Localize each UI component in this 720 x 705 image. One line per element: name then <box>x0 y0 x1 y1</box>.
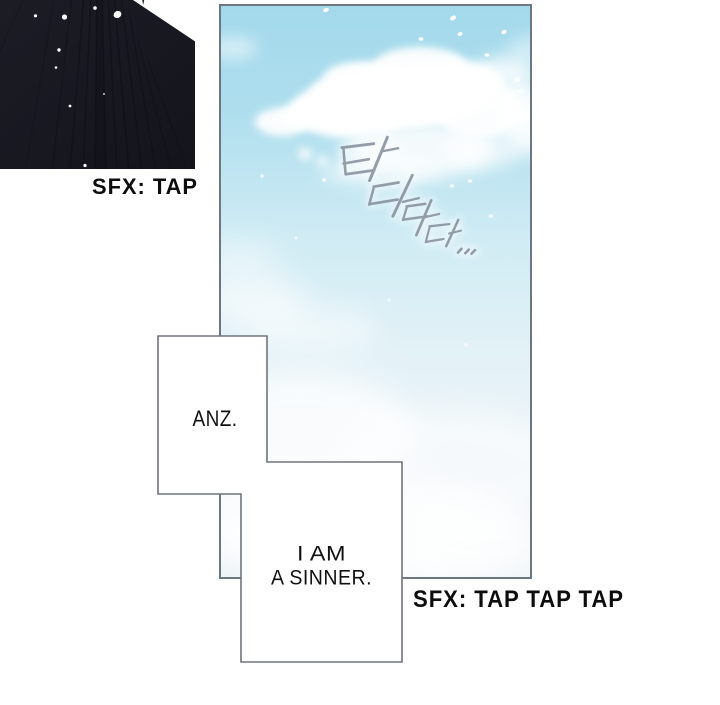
svg-text:SFX: TAP: SFX: TAP <box>92 174 198 199</box>
svg-text:A SINNER.: A SINNER. <box>271 567 372 590</box>
svg-text:I AM: I AM <box>297 543 346 566</box>
svg-text:ANZ.: ANZ. <box>193 406 238 431</box>
svg-text:SFX: TAP TAP TAP: SFX: TAP TAP TAP <box>413 586 624 613</box>
